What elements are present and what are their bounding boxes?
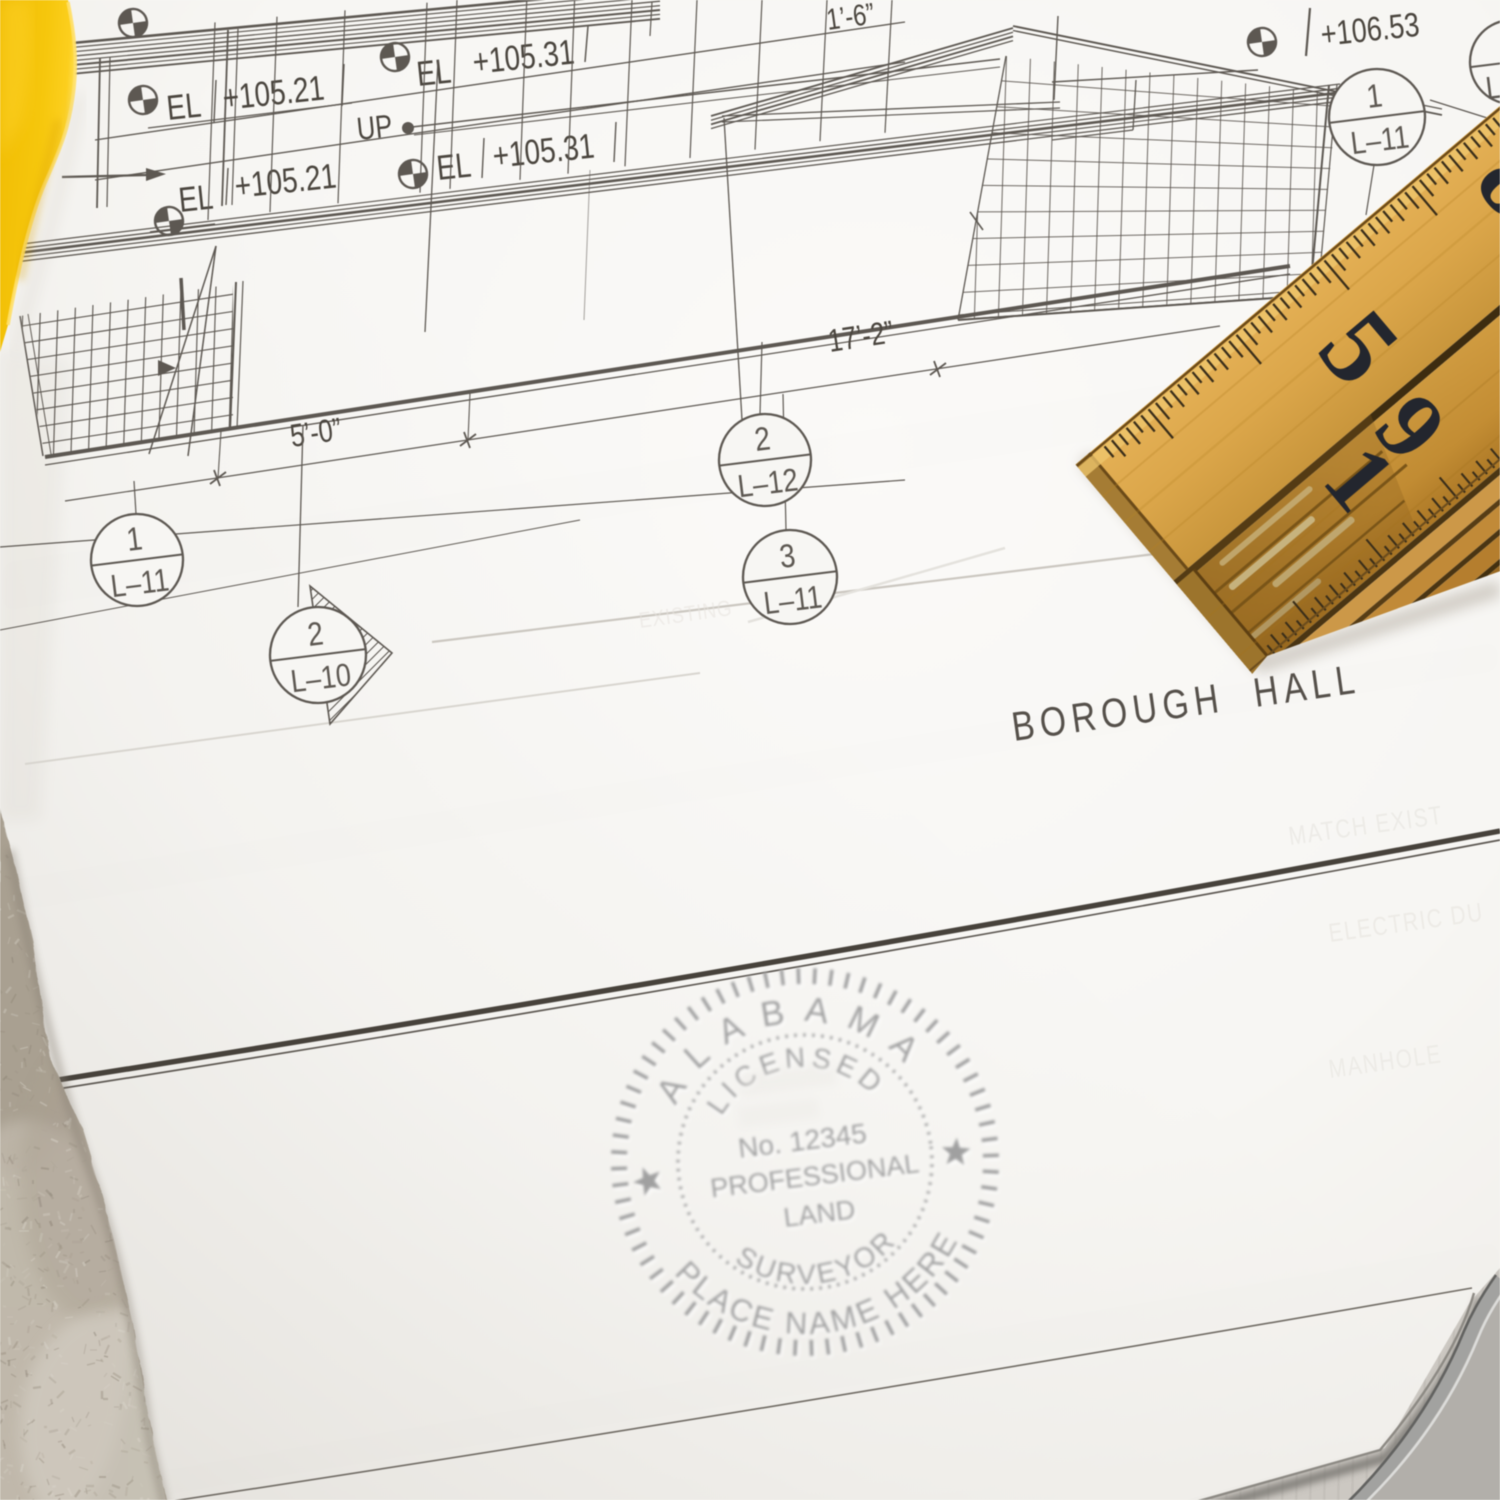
svg-text:5’-0”: 5’-0” — [288, 412, 344, 455]
svg-text:L–12: L–12 — [736, 462, 800, 505]
svg-text:EL: EL — [415, 51, 453, 94]
svg-text:L–11: L–11 — [1349, 119, 1411, 161]
svg-text:L–11: L–11 — [109, 562, 171, 604]
svg-text:EL: EL — [165, 85, 203, 128]
svg-text:L–10: L–10 — [289, 657, 353, 700]
svg-text:EL: EL — [435, 145, 473, 188]
svg-text:L–11: L–11 — [762, 579, 824, 621]
